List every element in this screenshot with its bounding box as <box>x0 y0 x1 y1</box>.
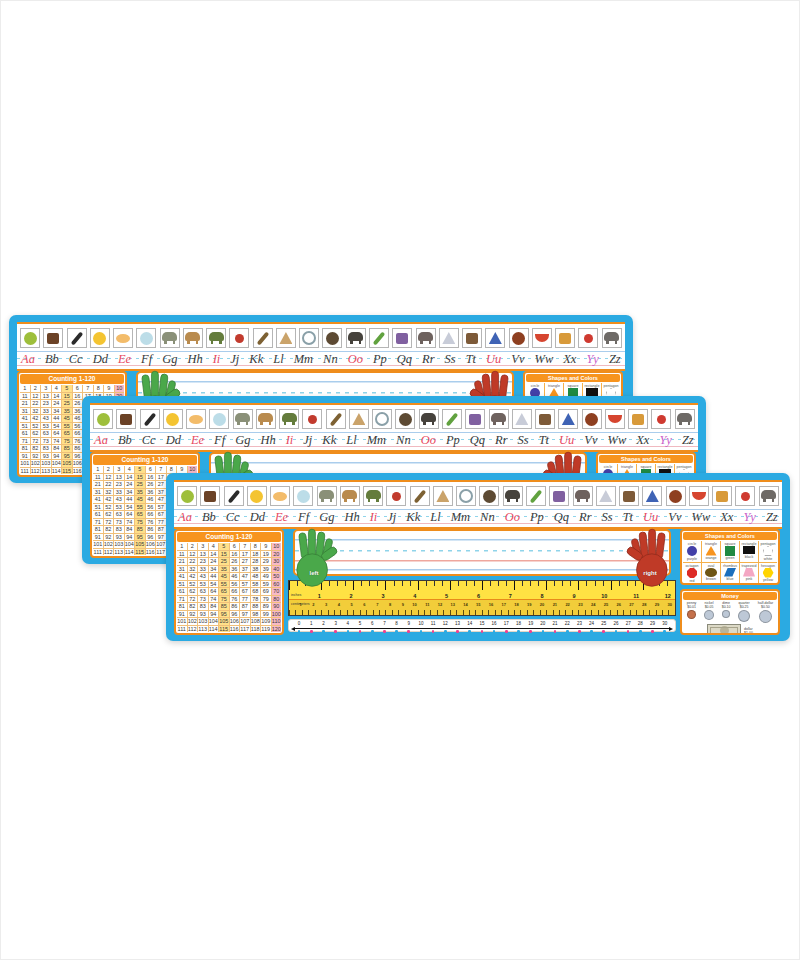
pentagon-label: pentagon <box>677 465 692 469</box>
inch-number: 5 <box>416 593 448 599</box>
count-cell: 67 <box>240 588 250 595</box>
count-cell: 16 <box>146 474 156 481</box>
trapezoid-icon <box>743 568 755 577</box>
duck-tile <box>163 409 183 429</box>
count-cell: 74 <box>209 596 219 603</box>
letter-Hh: Hh <box>260 432 275 448</box>
cm-number: 29 <box>646 602 659 607</box>
purple-label: purple <box>687 557 697 561</box>
penny-coin: penny$0.01 <box>687 601 697 619</box>
count-cell: 5 <box>135 466 145 473</box>
count-cell: 73 <box>198 596 208 603</box>
peas-icon <box>373 331 386 345</box>
shapes-colors-title: Shapes and Colors <box>526 374 620 382</box>
count-cell: 25 <box>135 481 145 488</box>
letter-Nn: Nn <box>480 509 495 525</box>
key-tile <box>326 409 346 429</box>
counting-chart-title: Counting 1-120 <box>177 532 281 542</box>
number-line-dot <box>444 630 447 633</box>
count-cell: 4 <box>125 466 135 473</box>
count-cell: 21 <box>20 400 30 407</box>
count-cell: 119 <box>261 626 271 633</box>
count-cell: 83 <box>198 603 208 610</box>
fishbowl-icon <box>213 413 226 426</box>
xylophone-icon <box>632 414 644 425</box>
number-line-point: 25 <box>598 621 610 633</box>
count-cell: 15 <box>135 474 145 481</box>
crayon-tile <box>67 328 87 348</box>
count-cell: 53 <box>114 504 124 511</box>
count-cell: 116 <box>146 549 156 556</box>
letter-Dd: Dd <box>93 351 108 367</box>
cm-number: 13 <box>442 602 455 607</box>
apple-tile <box>93 409 113 429</box>
duck-tile <box>247 486 267 506</box>
count-cell: 79 <box>261 596 271 603</box>
number-line-point: 6 <box>366 621 378 633</box>
inch-number: 10 <box>575 593 607 599</box>
number-line-point: 26 <box>610 621 622 633</box>
count-cell: 114 <box>125 549 135 556</box>
inch-number: 2 <box>321 593 353 599</box>
cm-number: 23 <box>570 602 583 607</box>
number-line-dot <box>615 630 618 633</box>
quarter-coin: quarter$0.25 <box>738 601 750 622</box>
square-icon <box>725 546 735 556</box>
letter-Mm: Mm <box>367 432 386 448</box>
count-cell: 102 <box>104 541 114 548</box>
count-cell: 11 <box>93 474 103 481</box>
pentagon-cell: pentagonwhite <box>759 541 777 562</box>
square-label: square <box>725 542 736 546</box>
count-cell: 42 <box>31 415 41 422</box>
count-cell: 104 <box>125 541 135 548</box>
timer-tile <box>535 409 555 429</box>
count-cell: 111 <box>177 626 187 633</box>
nest-tile <box>322 328 342 348</box>
number-line-number: 23 <box>577 621 582 627</box>
magnifying-glass-tile <box>456 486 476 506</box>
count-cell: 67 <box>156 511 166 518</box>
jacks-icon <box>392 492 401 501</box>
number-line-dot <box>359 630 362 633</box>
count-cell: 55 <box>135 504 145 511</box>
right-hand-label: right <box>624 570 676 576</box>
timer-tile <box>619 486 639 506</box>
count-cell: 110 <box>272 618 282 625</box>
count-cell: 11 <box>177 551 187 558</box>
number-line-dot <box>420 630 423 633</box>
count-cell: 83 <box>41 445 51 452</box>
number-line-dot <box>456 630 459 633</box>
zebra-icon <box>604 332 619 341</box>
cm-number: 4 <box>327 602 340 607</box>
umbrella-icon <box>562 413 575 425</box>
count-cell: 25 <box>219 558 229 565</box>
number-line-point: 17 <box>500 621 512 633</box>
letter-Ee: Ee <box>191 432 204 448</box>
circle-label: circle <box>531 384 539 388</box>
count-cell: 11 <box>20 393 30 400</box>
letter-Oo: Oo <box>505 509 520 525</box>
nest-icon <box>483 490 496 503</box>
alphabet-band: AaBbCcDdEeFfGgHhIiJjKkLlMmNnOoPpQqRrSsTt… <box>17 322 625 371</box>
count-cell: 35 <box>62 408 72 415</box>
letter-Kk: Kk <box>322 432 336 448</box>
trapezoid-label: trapezoid <box>742 564 757 568</box>
inch-number: 9 <box>544 593 576 599</box>
letter-Gg: Gg <box>162 351 177 367</box>
ladder-icon <box>352 413 365 425</box>
count-cell: 51 <box>177 581 187 588</box>
number-line-point: 1 <box>305 621 317 633</box>
ostrich-icon <box>505 490 520 499</box>
crayon-tile <box>224 486 244 506</box>
dime-icon <box>722 610 730 618</box>
letter-Mm: Mm <box>451 509 470 525</box>
letter-Bb: Bb <box>202 509 216 525</box>
count-cell: 31 <box>93 489 103 496</box>
horse-icon <box>185 332 200 341</box>
number-line-number: 0 <box>298 621 301 627</box>
yo-yo-icon <box>741 492 750 501</box>
number-line-dot <box>371 630 374 633</box>
centimeter-numbers: 1234567891011121314151617181920212223242… <box>289 602 672 607</box>
eggs-tile <box>186 409 206 429</box>
sailboat-icon <box>442 332 455 344</box>
fishbowl-icon <box>140 332 153 345</box>
count-cell: 81 <box>177 603 187 610</box>
count-cell: 55 <box>219 581 229 588</box>
number-line-number: 15 <box>479 621 484 627</box>
duck-icon <box>250 490 263 503</box>
letter-Ll: Ll <box>346 432 356 448</box>
count-cell: 111 <box>93 549 103 556</box>
iguana-tile <box>279 409 299 429</box>
count-cell: 96 <box>230 611 240 618</box>
umbrella-tile <box>642 486 662 506</box>
cm-number: 27 <box>621 602 634 607</box>
number-line-dot <box>663 630 666 633</box>
letter-Vv: Vv <box>668 509 681 525</box>
count-cell: 92 <box>31 453 41 460</box>
letter-Pp: Pp <box>530 509 544 525</box>
books-icon <box>120 414 132 425</box>
triangle-label: triangle <box>705 542 717 546</box>
count-cell: 42 <box>188 573 198 580</box>
count-cell: 74 <box>52 438 62 445</box>
count-cell: 91 <box>93 534 103 541</box>
count-cell: 87 <box>156 526 166 533</box>
count-cell: 21 <box>177 558 187 565</box>
letter-Ll: Ll <box>273 351 283 367</box>
iguana-tile <box>206 328 226 348</box>
shapes-colors-title: Shapes and Colors <box>683 532 777 540</box>
count-cell: 82 <box>188 603 198 610</box>
number-line-number: 8 <box>395 621 398 627</box>
letter-Cc: Cc <box>226 509 240 525</box>
left-hand-label: left <box>288 570 340 576</box>
count-cell: 57 <box>156 504 166 511</box>
count-cell: 97 <box>156 534 166 541</box>
number-line-dot <box>310 630 313 633</box>
number-line-dot <box>347 630 350 633</box>
number-line-dot <box>407 630 410 633</box>
inch-number: 8 <box>512 593 544 599</box>
inch-number: 6 <box>448 593 480 599</box>
count-cell: 5 <box>62 385 72 392</box>
umbrella-tile <box>558 409 578 429</box>
count-cell: 35 <box>135 489 145 496</box>
count-cell: 12 <box>31 393 41 400</box>
count-cell: 66 <box>230 588 240 595</box>
number-line-dot <box>468 630 471 633</box>
shapes-colors-panel: Shapes and Colors circlepurpletriangleor… <box>680 529 780 585</box>
count-cell: 73 <box>114 519 124 526</box>
ladder-icon <box>436 490 449 502</box>
magnifying-glass-tile <box>372 409 392 429</box>
jacks-tile <box>229 328 249 348</box>
dollar-bill-icon <box>707 624 741 636</box>
count-cell: 10 <box>115 385 125 392</box>
letter-Pp: Pp <box>373 351 387 367</box>
number-line-dot <box>432 630 435 633</box>
count-cell: 80 <box>272 596 282 603</box>
product-photo: AaBbCcDdEeFfGgHhIiJjKkLlMmNnOoPpQqRrSsTt… <box>0 0 800 960</box>
count-cell: 42 <box>104 496 114 503</box>
count-cell: 56 <box>146 504 156 511</box>
count-cell: 32 <box>188 566 198 573</box>
count-cell: 107 <box>156 541 166 548</box>
count-cell: 115 <box>219 626 229 633</box>
count-cell: 43 <box>41 415 51 422</box>
hexagon-label: hexagon <box>761 564 775 568</box>
count-cell: 61 <box>93 511 103 518</box>
letter-Ll: Ll <box>430 509 440 525</box>
letter-Ff: Ff <box>298 509 309 525</box>
letter-Aa: Aa <box>94 432 108 448</box>
count-cell: 99 <box>261 611 271 618</box>
nickel-value: $0.05 <box>705 605 714 609</box>
half-dollar-icon <box>759 610 772 623</box>
magnifying-glass-tile <box>299 328 319 348</box>
count-cell: 41 <box>177 573 187 580</box>
count-cell: 75 <box>219 596 229 603</box>
count-cell: 84 <box>125 526 135 533</box>
count-cell: 1 <box>20 385 30 392</box>
count-cell: 26 <box>73 400 83 407</box>
violin-icon <box>512 332 525 345</box>
alphabet-picture-row <box>90 405 698 431</box>
letter-Xx: Xx <box>563 351 576 367</box>
quilt-icon <box>553 491 565 502</box>
number-line-number: 11 <box>431 621 436 627</box>
orange-label: orange <box>705 556 716 560</box>
yo-yo-tile <box>651 409 671 429</box>
count-cell: 63 <box>198 588 208 595</box>
count-cell: 112 <box>188 626 198 633</box>
number-line-dot <box>578 630 581 633</box>
count-cell: 2 <box>31 385 41 392</box>
count-cell: 114 <box>209 626 219 633</box>
jacks-tile <box>386 486 406 506</box>
count-cell: 101 <box>177 618 187 625</box>
count-cell: 38 <box>251 566 261 573</box>
ruler-centimeter-scale: centimeters 1234567891011121314151617181… <box>289 600 675 615</box>
count-cell: 47 <box>240 573 250 580</box>
count-cell: 36 <box>230 566 240 573</box>
letter-Aa: Aa <box>178 509 192 525</box>
horse-icon <box>342 490 357 499</box>
sailboat-tile <box>596 486 616 506</box>
cm-number: 7 <box>366 602 379 607</box>
sailboat-icon <box>599 490 612 502</box>
sailboat-tile <box>512 409 532 429</box>
letter-Qq: Qq <box>470 432 485 448</box>
count-cell: 34 <box>125 489 135 496</box>
count-cell: 120 <box>272 626 282 633</box>
letter-Rr: Rr <box>495 432 508 448</box>
number-line-point: 23 <box>573 621 585 633</box>
count-cell: 90 <box>272 603 282 610</box>
letter-Ee: Ee <box>275 509 288 525</box>
xylophone-icon <box>559 333 571 344</box>
peas-icon <box>530 489 543 503</box>
zebra-icon <box>761 490 776 499</box>
count-cell: 27 <box>240 558 250 565</box>
pentagon-label: pentagon <box>604 384 619 388</box>
goat-icon <box>162 332 177 341</box>
rhino-tile <box>489 409 509 429</box>
letter-Ee: Ee <box>118 351 131 367</box>
horse-tile <box>340 486 360 506</box>
timer-icon <box>466 333 478 344</box>
count-cell: 111 <box>20 468 30 475</box>
count-cell: 71 <box>177 596 187 603</box>
magnifying-glass-icon <box>375 412 389 426</box>
number-line-number: 6 <box>371 621 374 627</box>
count-cell: 46 <box>146 496 156 503</box>
count-cell: 86 <box>230 603 240 610</box>
count-cell: 56 <box>73 423 83 430</box>
count-cell: 46 <box>230 573 240 580</box>
number-line-point: 2 <box>317 621 329 633</box>
apple-tile <box>20 328 40 348</box>
rectangle-cell: rectangleblack <box>740 541 758 562</box>
umbrella-tile <box>485 328 505 348</box>
count-cell: 81 <box>20 445 30 452</box>
number-line-number: 21 <box>553 621 558 627</box>
cm-number: 30 <box>659 602 672 607</box>
duck-icon <box>93 332 106 345</box>
count-cell: 100 <box>272 611 282 618</box>
number-line-number: 9 <box>408 621 411 627</box>
name-writing-area: left right <box>293 529 671 576</box>
number-line-number: 3 <box>334 621 337 627</box>
number-line-dot <box>554 630 557 633</box>
count-cell: 78 <box>251 596 261 603</box>
number-line-point: 14 <box>464 621 476 633</box>
count-cell: 15 <box>62 393 72 400</box>
coins-row: penny$0.01nickel$0.05dime$0.10quarter$0.… <box>682 601 778 623</box>
count-cell: 95 <box>62 453 72 460</box>
jacks-icon <box>308 415 317 424</box>
count-cell: 3 <box>198 543 208 550</box>
fishbowl-tile <box>136 328 156 348</box>
count-cell: 52 <box>31 423 41 430</box>
letter-Qq: Qq <box>554 509 569 525</box>
count-cell: 113 <box>114 549 124 556</box>
count-cell: 93 <box>114 534 124 541</box>
count-cell: 72 <box>31 438 41 445</box>
money-title: Money <box>683 592 777 600</box>
count-cell: 41 <box>20 415 30 422</box>
timer-tile <box>462 328 482 348</box>
cm-number: 25 <box>595 602 608 607</box>
letter-Ff: Ff <box>141 351 152 367</box>
letter-Ss: Ss <box>518 432 529 448</box>
count-cell: 116 <box>73 468 83 475</box>
count-cell: 66 <box>73 430 83 437</box>
count-cell: 6 <box>146 466 156 473</box>
number-line-dot <box>627 630 630 633</box>
count-cell: 2 <box>188 543 198 550</box>
count-cell: 87 <box>240 603 250 610</box>
alphabet-band: AaBbCcDdEeFfGgHhIiJjKkLlMmNnOoPpQqRrSsTt… <box>90 403 698 452</box>
letter-Vv: Vv <box>584 432 597 448</box>
zebra-icon <box>677 413 692 422</box>
number-line-point: 12 <box>439 621 451 633</box>
count-cell: 69 <box>261 588 271 595</box>
count-cell: 3 <box>114 466 124 473</box>
letter-Zz: Zz <box>609 351 621 367</box>
half-dollar-coin: half-dollar$0.50 <box>758 601 773 623</box>
count-cell: 7 <box>156 466 166 473</box>
letter-Nn: Nn <box>396 432 411 448</box>
letter-Uu: Uu <box>643 509 658 525</box>
oval-cell: ovalbrown <box>702 563 720 584</box>
count-cell: 25 <box>62 400 72 407</box>
ladder-tile <box>349 409 369 429</box>
quilt-icon <box>469 414 481 425</box>
count-cell: 104 <box>209 618 219 625</box>
number-line-point: 21 <box>549 621 561 633</box>
half-dollar-value: $0.50 <box>761 605 770 609</box>
count-cell: 71 <box>20 438 30 445</box>
magnifying-glass-icon <box>459 489 473 503</box>
money-panel: Money penny$0.01nickel$0.05dime$0.10quar… <box>680 589 780 635</box>
alphabet-letters-row: AaBbCcDdEeFfGgHhIiJjKkLlMmNnOoPpQqRrSsTt… <box>90 431 698 448</box>
plate-center-column: left right <box>288 529 676 635</box>
black-label: black <box>745 555 753 559</box>
counting-chart-title: Counting 1-120 <box>20 374 124 384</box>
count-cell: 23 <box>114 481 124 488</box>
octagon-label: octagon <box>686 564 699 568</box>
count-cell: 112 <box>104 549 114 556</box>
duck-icon <box>166 413 179 426</box>
cm-number: 20 <box>532 602 545 607</box>
number-line-number: 1 <box>310 621 313 627</box>
number-line-number: 17 <box>504 621 509 627</box>
count-cell: 5 <box>219 543 229 550</box>
count-cell: 36 <box>146 489 156 496</box>
number-line-point: 3 <box>330 621 342 633</box>
shapes-colors-title: Shapes and Colors <box>599 455 693 463</box>
count-cell: 49 <box>261 573 271 580</box>
apple-icon <box>97 413 110 426</box>
count-cell: 33 <box>114 489 124 496</box>
number-line-point: 11 <box>427 621 439 633</box>
